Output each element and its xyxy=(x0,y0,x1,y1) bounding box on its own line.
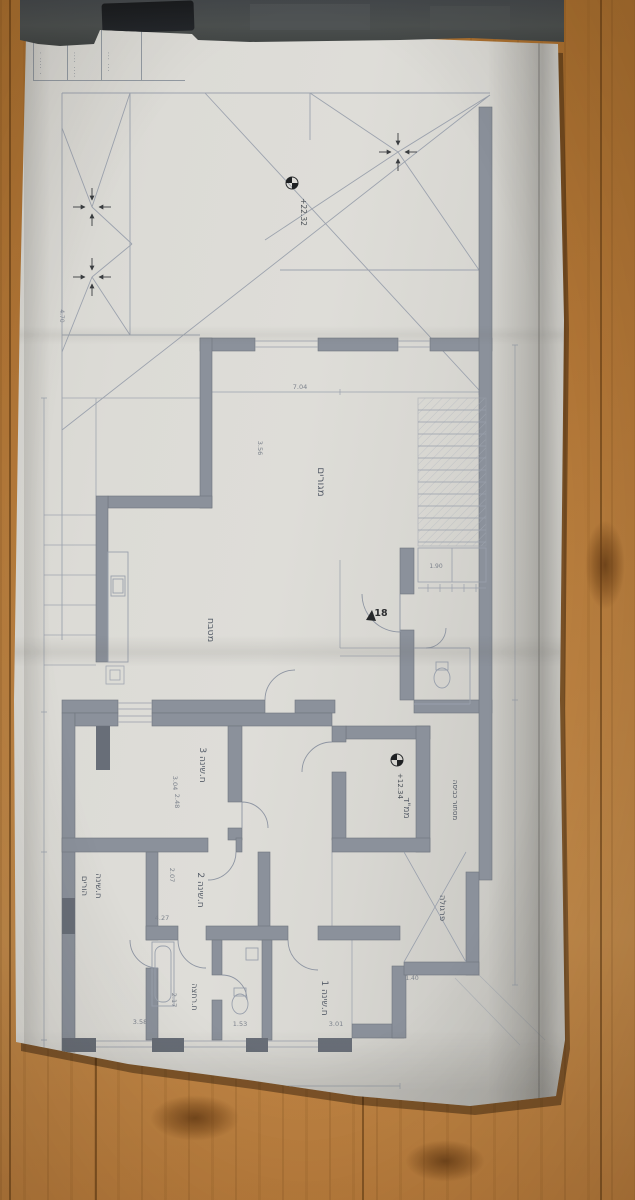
roof-level-text: +22.32 xyxy=(299,198,308,226)
svg-text:2.17: 2.17 xyxy=(170,993,178,1007)
svg-text:2.48: 2.48 xyxy=(173,794,181,808)
svg-text:1.40: 1.40 xyxy=(405,975,419,982)
dark-object xyxy=(102,0,195,33)
room-label-master-1: ח.שינה xyxy=(93,873,103,898)
paper-crease xyxy=(14,636,566,666)
room-label-master-2: הורים xyxy=(79,876,89,896)
sink-icon xyxy=(246,948,258,960)
bath-fixtures xyxy=(152,942,258,1014)
benchmark-icon xyxy=(286,177,298,189)
room-label-pergola: פרגולה xyxy=(437,895,447,921)
svg-text:3.01: 3.01 xyxy=(329,1020,343,1028)
blueprint-paper: · ···· · ···· ···· ··· ··· xyxy=(0,0,635,1200)
room-label-living: מגורים xyxy=(315,467,327,497)
staircase xyxy=(418,398,486,592)
saferoom-level-text: +12.34 xyxy=(396,773,404,799)
dark-strip-detail xyxy=(250,4,370,30)
wood-knot xyxy=(150,1095,240,1141)
svg-text:3.58: 3.58 xyxy=(133,1018,147,1026)
plank-line xyxy=(9,0,11,1200)
room-label-laundry: מסתור כביסה xyxy=(451,780,459,821)
photo-of-floorplan: · ···· · ···· ···· ··· ··· xyxy=(0,0,635,1200)
room-label-saferoom: ממ"ד xyxy=(401,797,411,818)
svg-text:4.27: 4.27 xyxy=(155,914,169,922)
svg-text:3.56: 3.56 xyxy=(256,441,264,455)
floorplan-drawing: +22.32 4.70 xyxy=(30,55,550,1100)
room-label-bathroom: ח.רחצה xyxy=(190,983,199,1010)
dark-top-strip xyxy=(0,0,635,47)
svg-text:7.04: 7.04 xyxy=(293,383,307,391)
paper-crease xyxy=(24,36,50,1046)
room-label-bedroom3: ח.שינה 3 xyxy=(197,747,207,782)
dark-strip-detail xyxy=(430,6,510,30)
wood-knot xyxy=(405,1140,485,1182)
room-label-bedroom2: ח.שינה 2 xyxy=(195,872,205,907)
svg-text:18: 18 xyxy=(374,608,388,619)
plank-line xyxy=(95,1050,97,1200)
roof-plan xyxy=(62,93,490,640)
paper-crease xyxy=(538,36,540,1100)
svg-text:3.04: 3.04 xyxy=(171,776,179,790)
roof-dim-text: 4.70 xyxy=(58,309,65,323)
svg-text:2.07: 2.07 xyxy=(168,868,176,882)
room-label-bedroom1: ח.שינה 1 xyxy=(319,980,329,1015)
svg-text:1.90: 1.90 xyxy=(429,563,443,570)
svg-text:1.53: 1.53 xyxy=(233,1020,247,1028)
paper-crease xyxy=(14,326,566,344)
roof-hip-lines xyxy=(62,93,490,430)
pergola-cross xyxy=(404,852,466,962)
entry-door-tag: 18 xyxy=(366,608,388,621)
benchmark-icon xyxy=(391,754,403,766)
slope-arrows-icon xyxy=(73,133,417,296)
roof-outline xyxy=(62,93,490,640)
wood-knot xyxy=(585,520,625,610)
